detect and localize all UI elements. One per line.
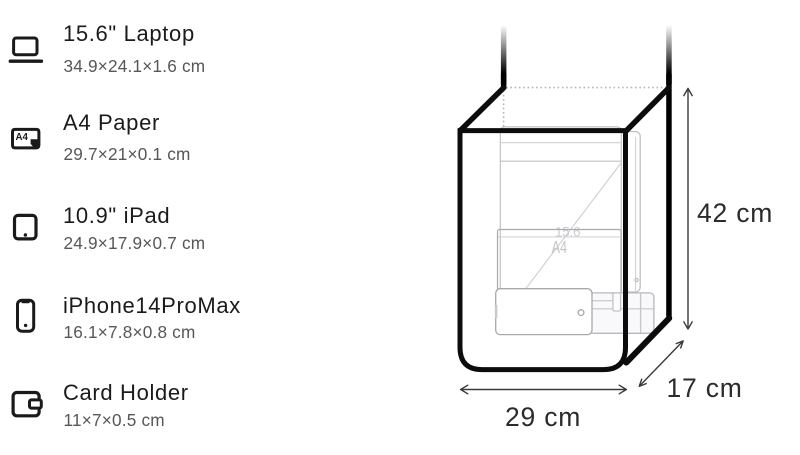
- svg-text:A4: A4: [16, 132, 29, 143]
- svg-text:A4: A4: [552, 237, 568, 257]
